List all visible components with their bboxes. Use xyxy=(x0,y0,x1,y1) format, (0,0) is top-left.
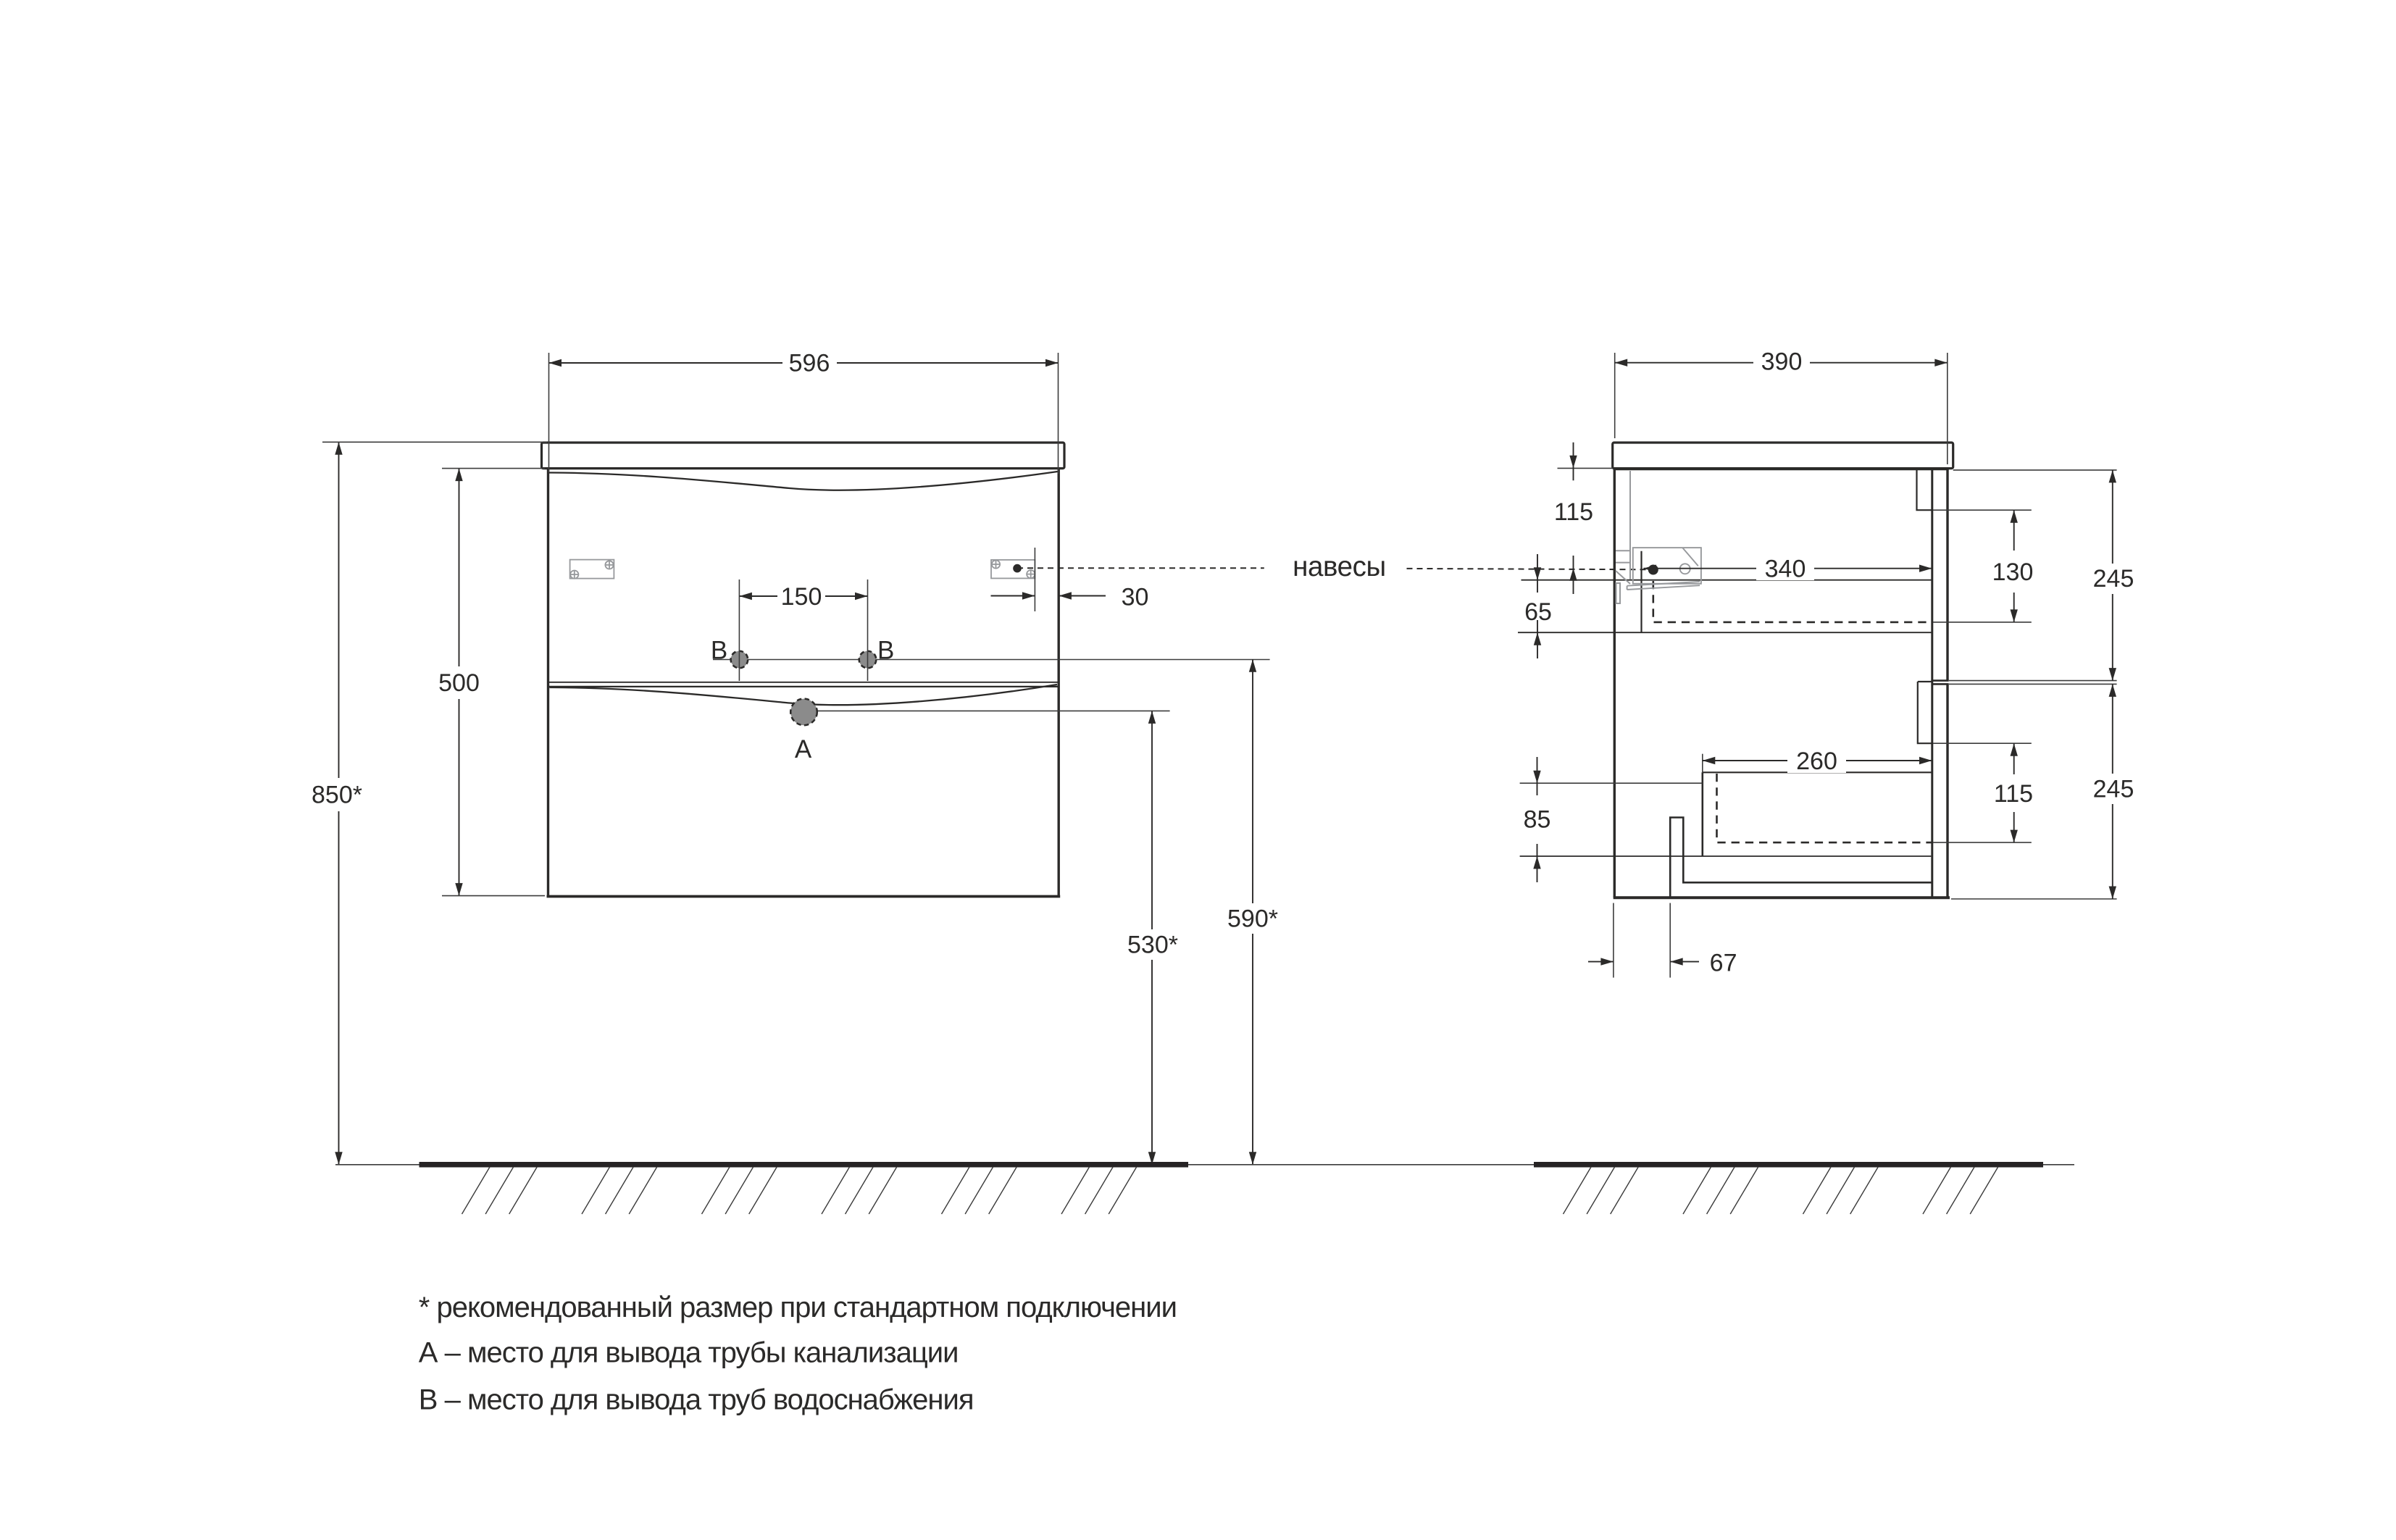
svg-text:590*: 590* xyxy=(1227,905,1278,933)
svg-text:340: 340 xyxy=(1765,556,1806,583)
svg-text:115: 115 xyxy=(1554,498,1593,526)
svg-text:30: 30 xyxy=(1122,584,1149,611)
svg-text:навесы: навесы xyxy=(1293,551,1386,582)
svg-text:530*: 530* xyxy=(1127,932,1178,959)
svg-text:* рекомендованный размер при с: * рекомендованный размер при стандартном… xyxy=(419,1292,1177,1323)
svg-text:B: B xyxy=(877,637,894,665)
svg-text:850*: 850* xyxy=(312,782,362,809)
svg-text:A: A xyxy=(795,735,812,763)
svg-text:245: 245 xyxy=(2093,776,2134,803)
svg-text:85: 85 xyxy=(1524,806,1551,834)
svg-text:А – место для вывода трубы кан: А – место для вывода трубы канализации xyxy=(419,1337,959,1369)
svg-text:260: 260 xyxy=(1796,748,1837,775)
svg-text:B: B xyxy=(711,637,727,665)
svg-text:115: 115 xyxy=(1994,780,2033,808)
svg-text:В – место для вывода труб водо: В – место для вывода труб водоснабжения xyxy=(419,1384,974,1416)
svg-text:245: 245 xyxy=(2093,565,2134,593)
svg-text:150: 150 xyxy=(781,583,822,611)
svg-text:500: 500 xyxy=(438,669,480,697)
svg-text:67: 67 xyxy=(1710,950,1737,977)
svg-text:390: 390 xyxy=(1761,348,1803,376)
svg-text:130: 130 xyxy=(1992,558,2034,586)
svg-text:596: 596 xyxy=(789,350,830,377)
svg-text:65: 65 xyxy=(1524,598,1552,626)
